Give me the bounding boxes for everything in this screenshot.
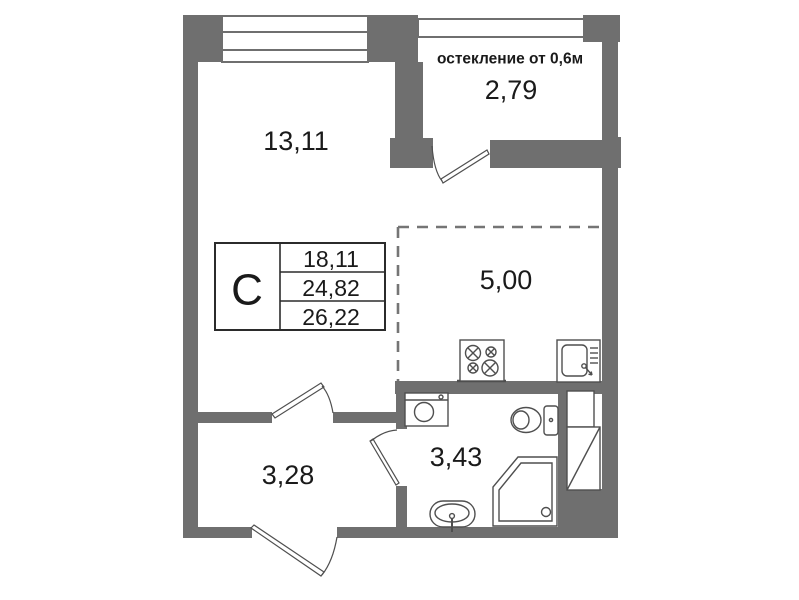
wall-hall-top-left [183, 412, 272, 423]
wall-corner-top-left [183, 15, 222, 62]
info-table-value: 26,22 [302, 304, 360, 330]
wall-bath-left-bottom [396, 486, 407, 527]
wall-right [602, 36, 618, 538]
wall-room-divider-foot [390, 138, 433, 168]
kitchen-sink-icon [557, 340, 600, 382]
wall-room-divider [395, 62, 423, 140]
shower-icon [493, 457, 557, 526]
washing-machine-icon [405, 393, 448, 426]
info-table-value: 24,82 [302, 275, 360, 301]
toilet-bowl [511, 408, 541, 433]
wall-window-pier [368, 15, 418, 62]
balcony-glazing [418, 19, 602, 37]
wall-hall-top-right [333, 412, 407, 423]
living-room-area-label: 13,11 [263, 126, 329, 156]
stove-body [460, 340, 504, 381]
balcony-glazing-note: остекление от 0,6м [437, 51, 583, 68]
door-leaf [272, 383, 324, 418]
entrance-door [251, 525, 337, 576]
wall-bottom-left [183, 527, 252, 538]
apartment-type-label: С [231, 266, 263, 315]
door-swing-arc [371, 430, 397, 441]
wall-bottom-mid [337, 527, 563, 538]
wall-left [183, 15, 198, 538]
shaft-box [567, 391, 594, 427]
balcony-door [432, 146, 489, 183]
door-swing-arc [432, 146, 442, 181]
bathroom-door [370, 430, 399, 485]
door-leaf [251, 525, 324, 576]
wall-balcony-bottom [490, 140, 602, 168]
door-leaf [370, 439, 399, 485]
floor-plan-page: С 18,11 24,82 26,22 остекление от 0,6м 2… [0, 0, 799, 600]
apartment-info-table: С 18,11 24,82 26,22 [215, 243, 385, 330]
stove-icon [457, 340, 506, 381]
bathroom-area-label: 3,43 [430, 442, 483, 472]
balcony-area-label: 2,79 [485, 75, 538, 105]
door-swing-arc [322, 386, 333, 413]
hallway-area-label: 3,28 [262, 460, 315, 490]
wall-corner-bottom-right [558, 489, 618, 538]
room-door [272, 383, 333, 418]
floor-plan: С 18,11 24,82 26,22 остекление от 0,6м 2… [0, 0, 799, 600]
door-swing-arc [322, 537, 337, 575]
kitchen-zone-area-label: 5,00 [480, 265, 533, 295]
toilet-icon [511, 406, 558, 435]
wall-right-bump [602, 137, 621, 168]
toilet-tank [544, 406, 558, 435]
vent-shaft [567, 391, 600, 490]
window [222, 16, 368, 62]
door-leaf [441, 150, 489, 183]
window-frame [222, 16, 368, 62]
info-table-value: 18,11 [303, 246, 359, 272]
